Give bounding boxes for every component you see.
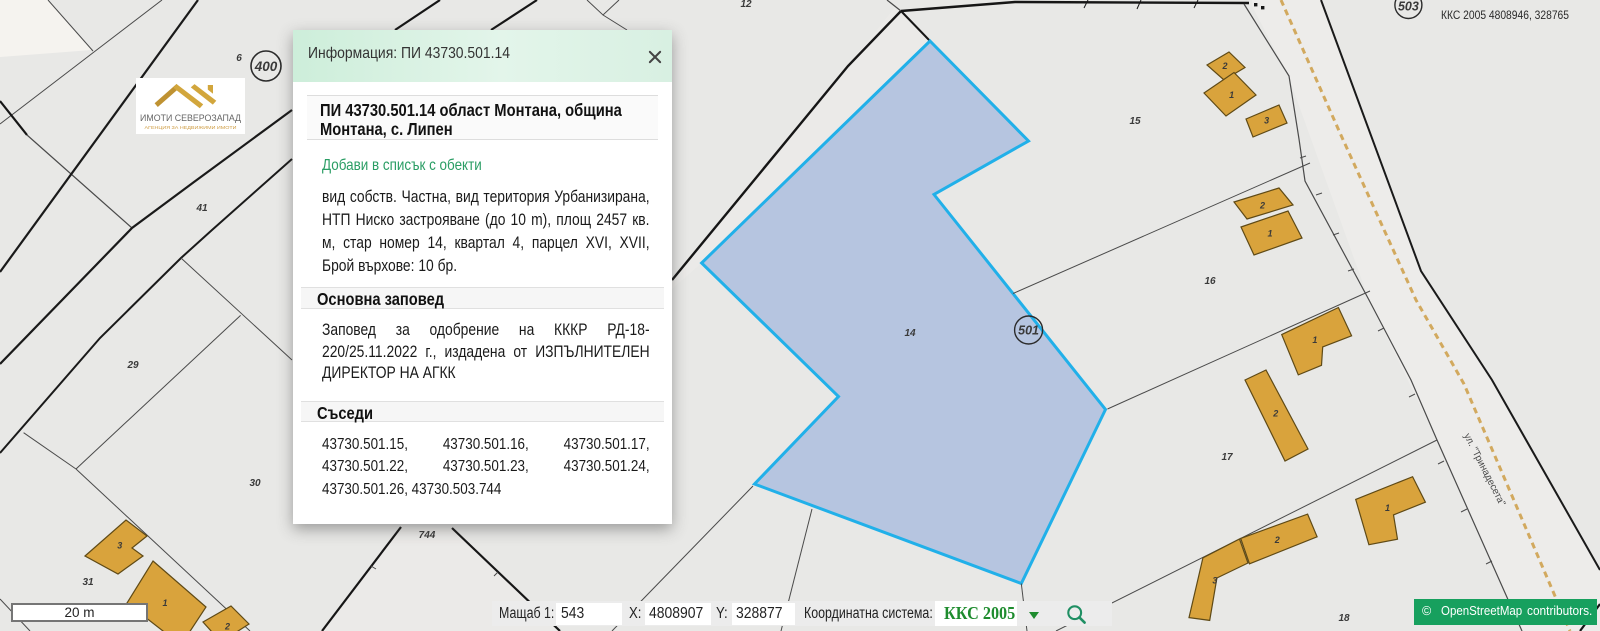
svg-text:АГЕНЦИЯ ЗА НЕДВИЖИМИ ИМОТИ: АГЕНЦИЯ ЗА НЕДВИЖИМИ ИМОТИ <box>144 125 236 130</box>
svg-text:2: 2 <box>224 622 230 631</box>
svg-text:30: 30 <box>249 478 261 489</box>
svg-text:12: 12 <box>740 0 752 10</box>
svg-text:1: 1 <box>162 598 167 608</box>
svg-text:1: 1 <box>1229 90 1234 100</box>
svg-text:3: 3 <box>117 541 122 551</box>
svg-text:501: 501 <box>1018 324 1039 338</box>
svg-text:2: 2 <box>1272 408 1278 418</box>
svg-text:1: 1 <box>1385 503 1390 513</box>
svg-text:3: 3 <box>1264 116 1269 126</box>
svg-text:400: 400 <box>254 59 278 74</box>
svg-text:744: 744 <box>419 530 436 541</box>
svg-text:41: 41 <box>195 203 208 214</box>
svg-text:1: 1 <box>1312 335 1317 345</box>
svg-text:15: 15 <box>1129 116 1141 127</box>
svg-text:ККС 2005 4808946, 328765: ККС 2005 4808946, 328765 <box>1441 10 1569 22</box>
svg-text:18: 18 <box>1338 613 1350 624</box>
svg-text:14: 14 <box>904 328 916 339</box>
svg-text:2: 2 <box>1274 535 1280 545</box>
svg-text:1: 1 <box>1267 229 1272 239</box>
svg-text:29: 29 <box>126 360 139 371</box>
svg-text:2: 2 <box>1259 201 1265 211</box>
svg-text:16: 16 <box>1204 276 1216 287</box>
svg-text:503: 503 <box>1398 0 1419 14</box>
svg-text:3: 3 <box>1212 576 1217 586</box>
svg-text:2: 2 <box>1221 61 1227 71</box>
svg-text:17: 17 <box>1221 452 1233 463</box>
svg-text:ИМОТИ СЕВЕРОЗАПАД: ИМОТИ СЕВЕРОЗАПАД <box>140 113 242 124</box>
svg-text:31: 31 <box>82 577 94 588</box>
svg-text:6: 6 <box>236 53 242 64</box>
